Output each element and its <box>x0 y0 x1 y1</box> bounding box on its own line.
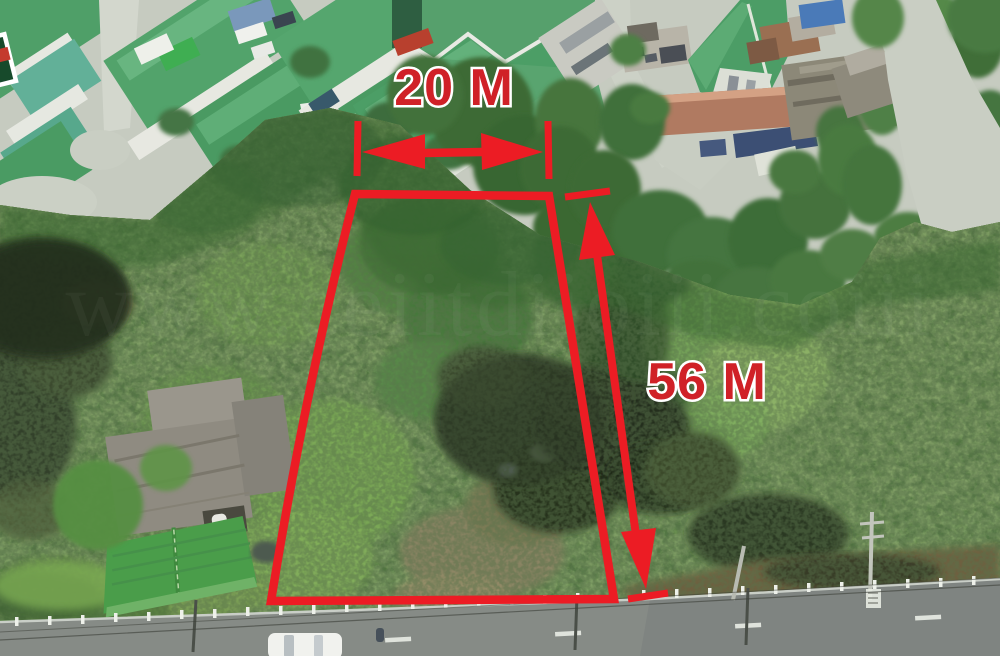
svg-text:20 M: 20 M <box>394 59 514 117</box>
svg-text:56 M: 56 M <box>647 353 767 411</box>
svg-text:www.ceiitdiioiii.coiii: www.ceiitdiioiii.coiii <box>65 253 934 355</box>
